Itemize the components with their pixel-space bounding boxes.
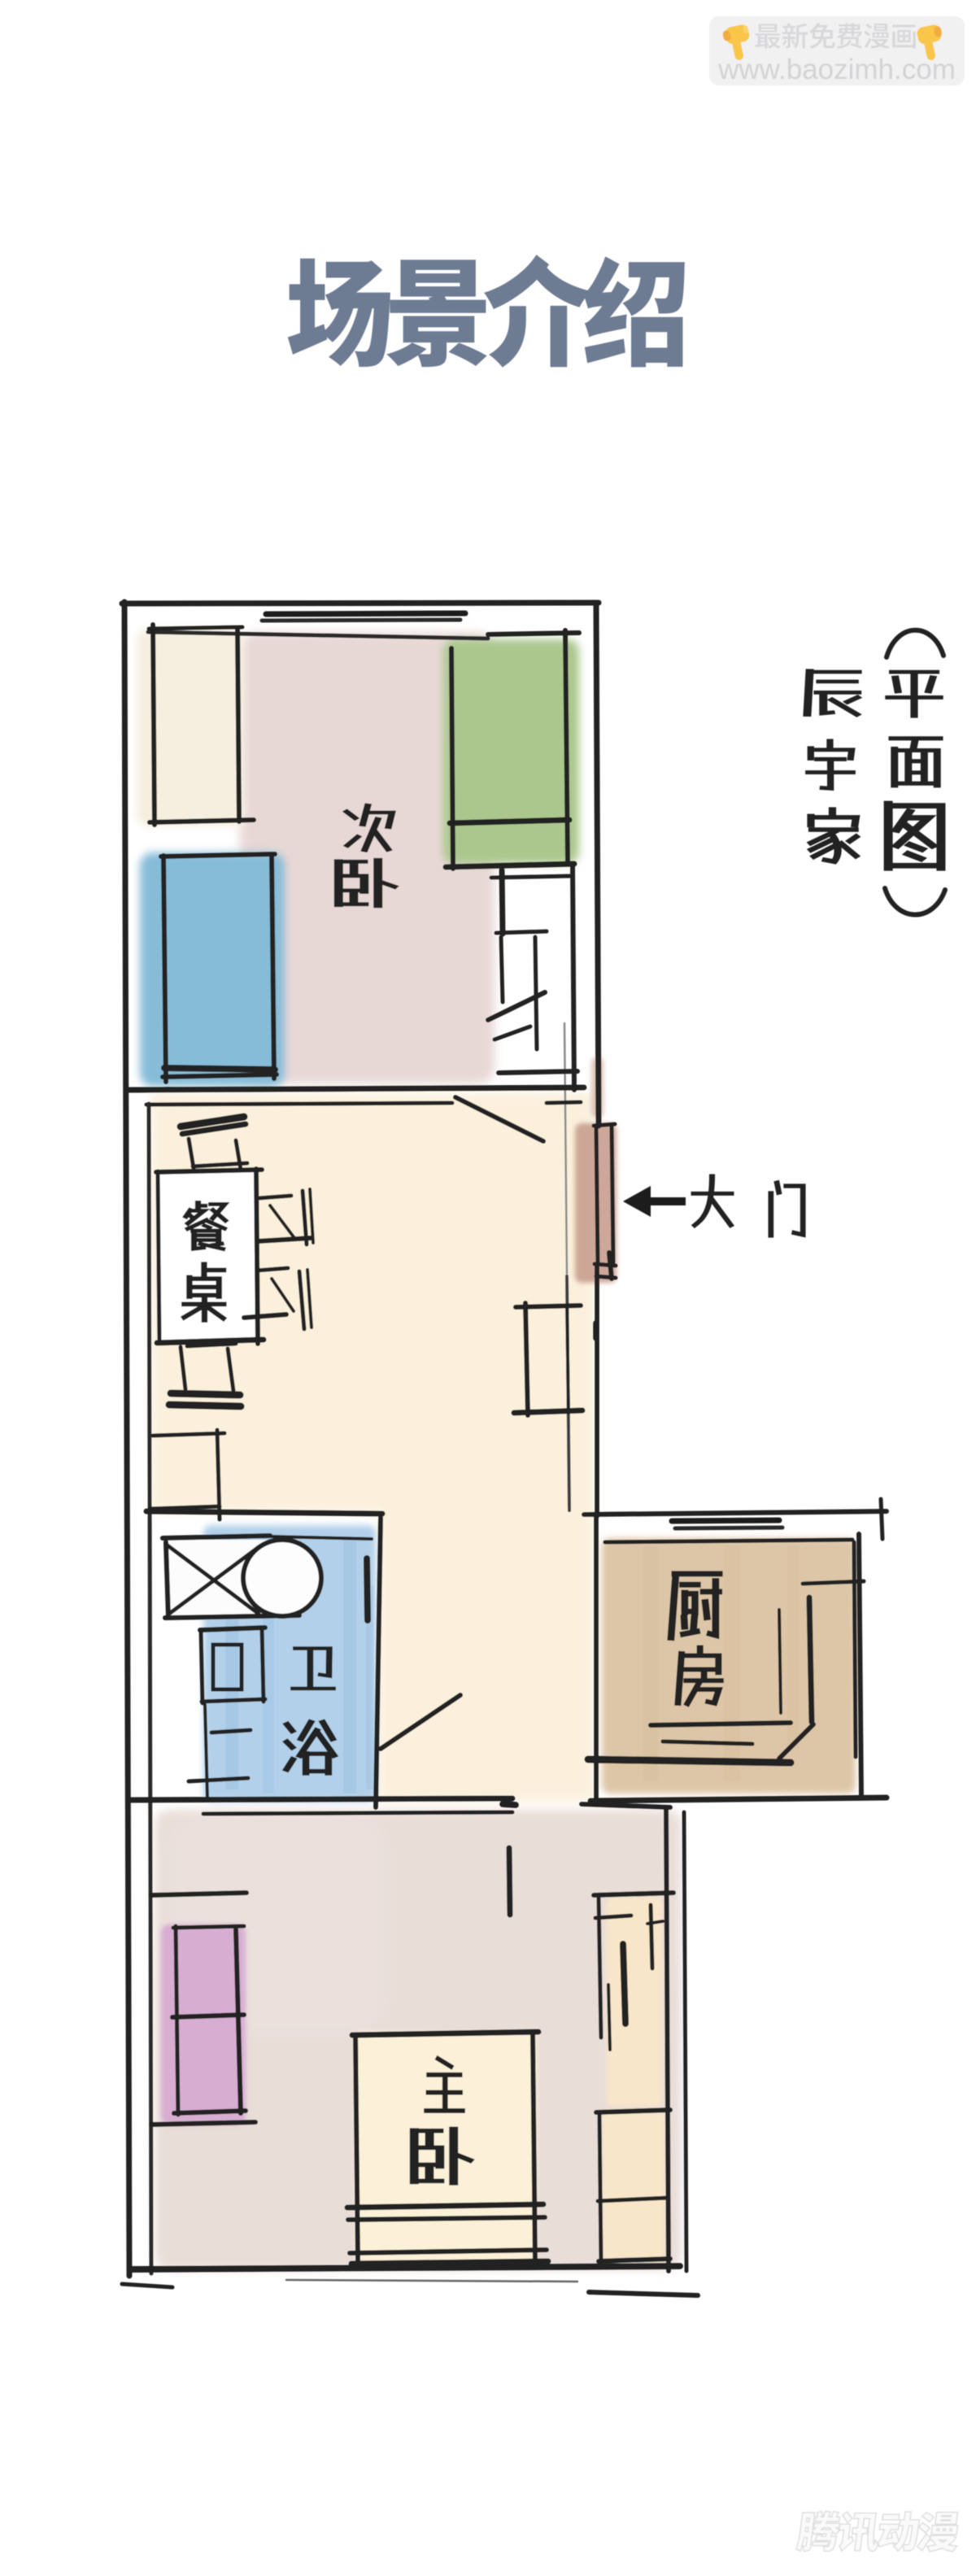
svg-text:www.baozimh.com: www.baozimh.com: [717, 54, 956, 85]
